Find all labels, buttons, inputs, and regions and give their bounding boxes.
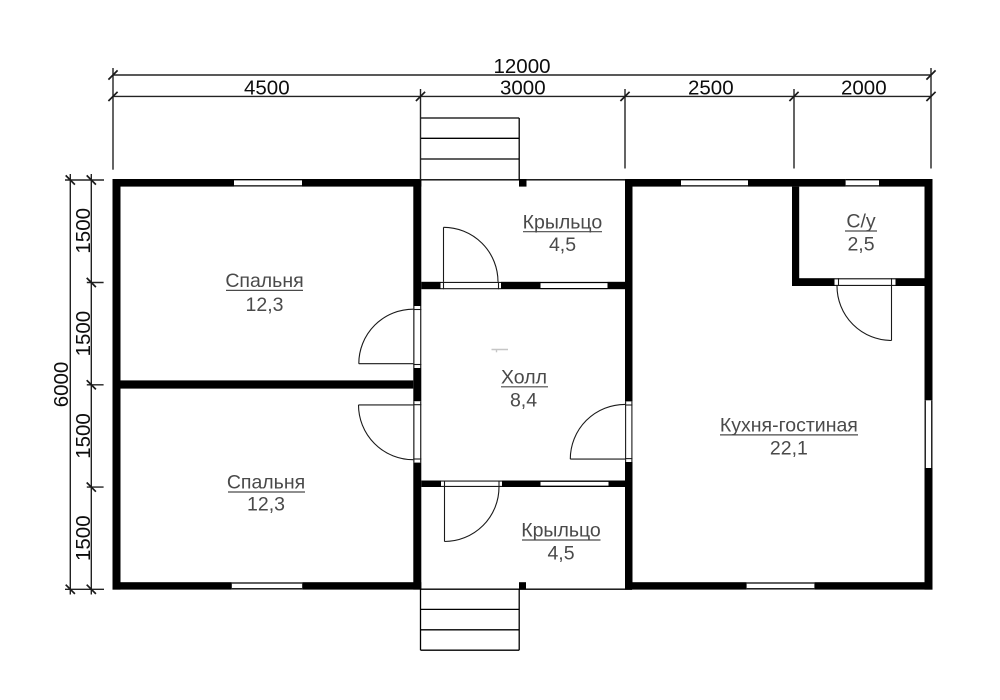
svg-text:1500: 1500 (72, 208, 95, 254)
svg-text:3000: 3000 (500, 77, 546, 100)
svg-text:2000: 2000 (841, 77, 887, 100)
svg-text:6000: 6000 (50, 362, 73, 408)
svg-text:1500: 1500 (72, 311, 95, 357)
svg-text:Холл: Холл (501, 367, 547, 389)
svg-text:12,3: 12,3 (247, 494, 285, 516)
svg-text:Крыльцо: Крыльцо (523, 211, 603, 233)
svg-text:1500: 1500 (72, 413, 95, 459)
svg-text:4,5: 4,5 (547, 543, 574, 565)
svg-text:12000: 12000 (493, 55, 550, 78)
svg-text:4,5: 4,5 (549, 234, 576, 256)
svg-text:4500: 4500 (244, 77, 290, 100)
svg-text:Спальня: Спальня (225, 270, 303, 292)
svg-text:8,4: 8,4 (510, 389, 537, 411)
svg-text:2,5: 2,5 (847, 233, 874, 255)
svg-text:Крыльцо: Крыльцо (521, 520, 601, 542)
svg-text:Кухня-гостиная: Кухня-гостиная (720, 415, 858, 437)
svg-text:2500: 2500 (688, 77, 734, 100)
svg-text:С/у: С/у (846, 211, 876, 233)
svg-text:22,1: 22,1 (770, 437, 808, 459)
svg-text:1500: 1500 (72, 515, 95, 561)
svg-text:12,3: 12,3 (246, 294, 284, 316)
svg-text:Спальня: Спальня (227, 472, 305, 494)
